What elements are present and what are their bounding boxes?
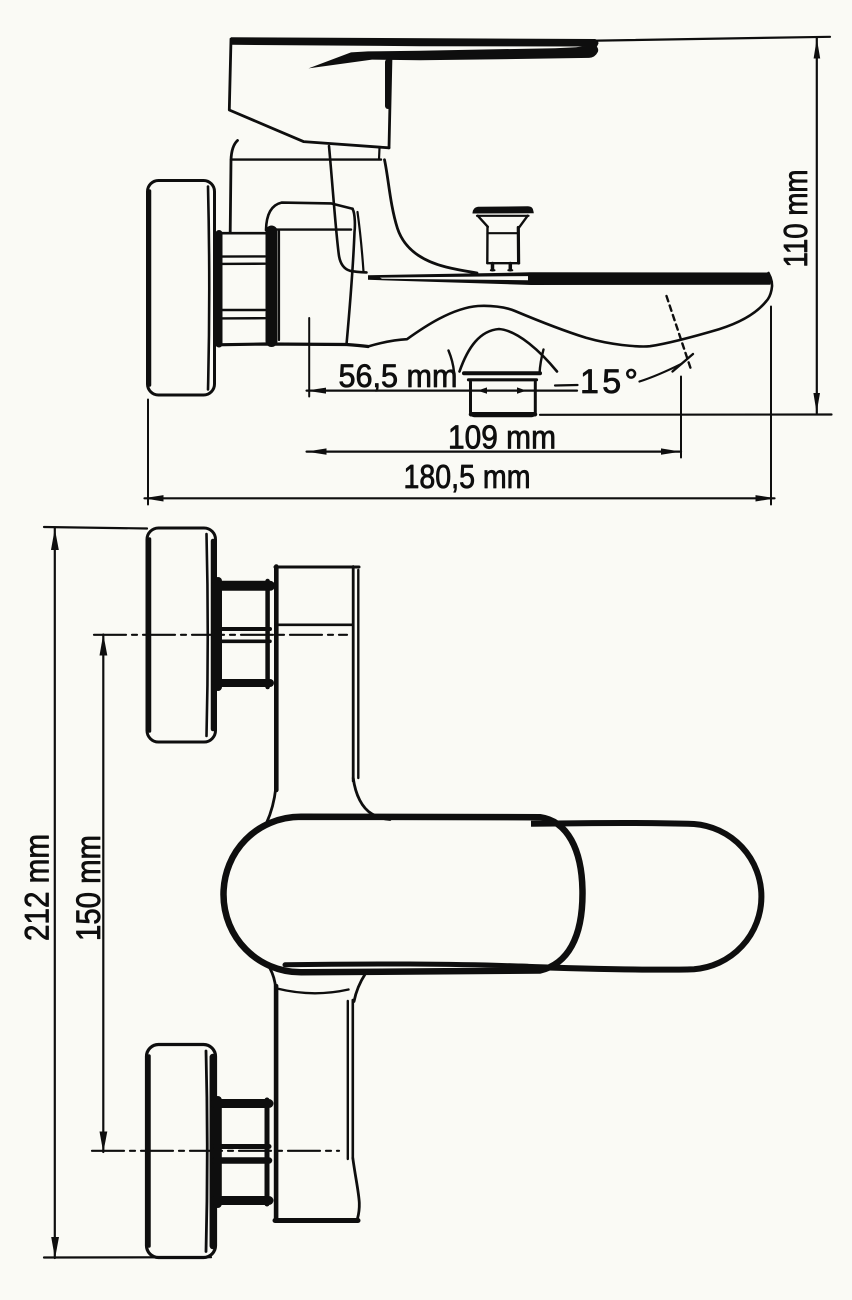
svg-text:110 mm: 110 mm (778, 170, 815, 268)
svg-text:212 mm: 212 mm (19, 834, 57, 941)
svg-text:180,5 mm: 180,5 mm (404, 458, 531, 495)
svg-text:56,5 mm: 56,5 mm (339, 358, 458, 394)
svg-text:150 mm: 150 mm (70, 835, 108, 941)
svg-text:15°: 15° (580, 363, 638, 401)
svg-text:109 mm: 109 mm (448, 419, 556, 456)
